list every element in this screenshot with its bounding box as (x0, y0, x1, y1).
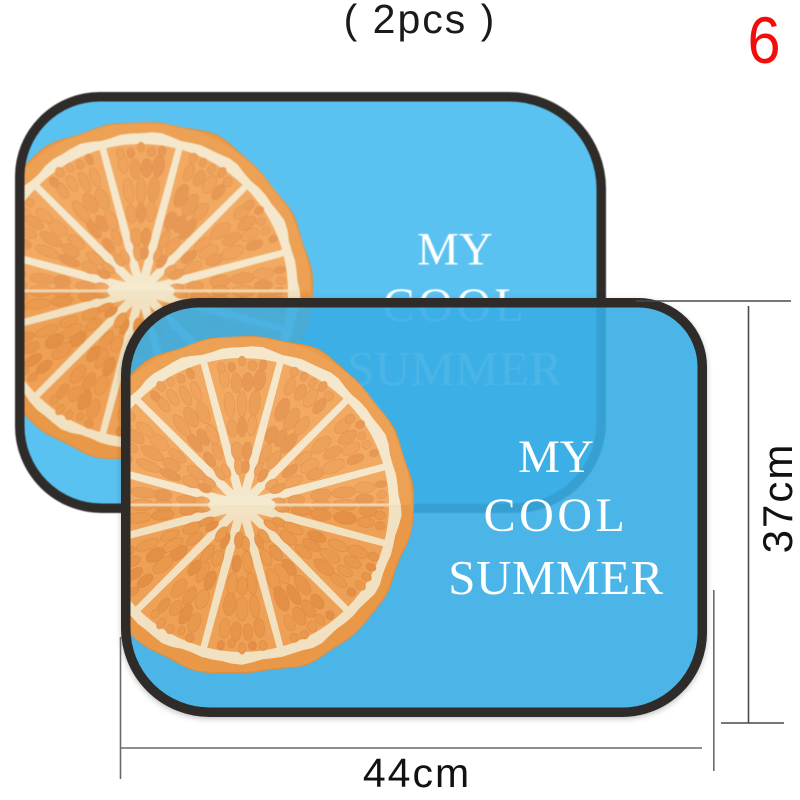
svg-text:37cm: 37cm (754, 443, 800, 554)
svg-text:SUMMER: SUMMER (448, 550, 663, 605)
svg-text:MY: MY (417, 224, 493, 276)
svg-text:( 2pcs ): ( 2pcs ) (344, 0, 497, 42)
svg-text:MY: MY (518, 431, 594, 483)
svg-text:6: 6 (747, 4, 780, 78)
svg-text:COOL: COOL (484, 489, 629, 542)
svg-text:44cm: 44cm (363, 750, 471, 796)
